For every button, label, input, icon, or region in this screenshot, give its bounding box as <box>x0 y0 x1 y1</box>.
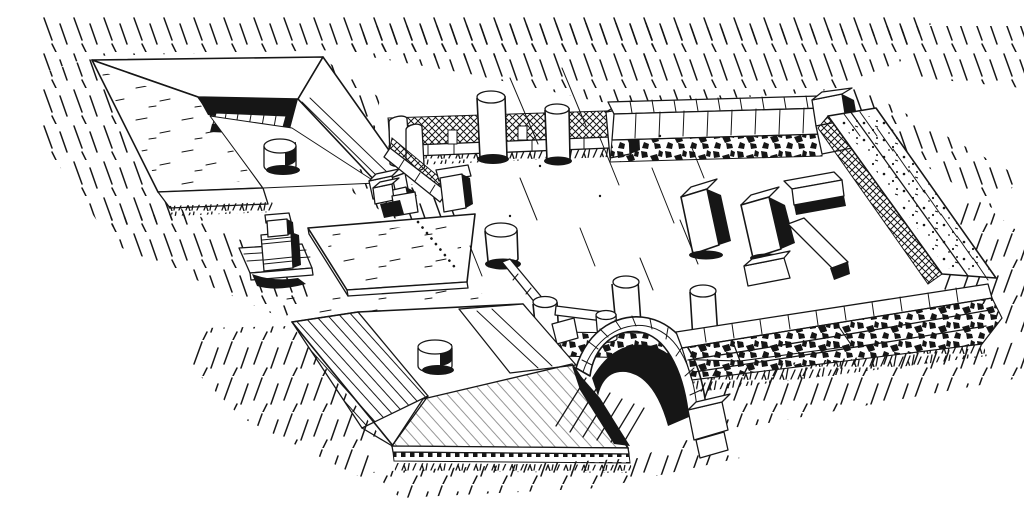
stump-top <box>545 104 569 114</box>
enclosure-back-wall <box>608 96 826 162</box>
ruins-drawing: Pen-and-ink perspective drawing of excav… <box>40 16 1024 514</box>
ruins-figure: Pen-and-ink perspective drawing of excav… <box>40 16 1024 514</box>
tall-stump <box>477 91 509 164</box>
fence-colonnade <box>388 91 640 171</box>
hatch-above-fence <box>342 22 660 104</box>
low-wall-2 <box>788 218 848 268</box>
floor-dot <box>599 195 601 197</box>
drum-top <box>596 311 616 320</box>
stump-top <box>485 223 517 237</box>
round-table-2 <box>418 340 454 375</box>
pillar-1 <box>681 179 731 260</box>
stump-top <box>690 285 716 297</box>
altar-block-shade <box>287 219 294 235</box>
column-stump <box>477 96 507 162</box>
column-stump <box>545 108 570 163</box>
altar-block <box>267 219 288 237</box>
stump-top <box>477 91 505 103</box>
dentil-frieze <box>393 452 630 463</box>
table-top <box>264 139 296 153</box>
stump-shadow <box>477 154 509 164</box>
stump-top <box>533 297 557 308</box>
fallen-slab <box>308 214 475 296</box>
stump-top <box>613 276 639 288</box>
floor-dot <box>659 135 661 137</box>
floor-dot <box>509 215 511 217</box>
fence-post <box>518 126 527 140</box>
interior-pillars <box>681 179 795 263</box>
altar <box>239 213 313 289</box>
table-shadow <box>266 165 300 175</box>
table-shadow <box>422 365 454 375</box>
fence-post <box>448 130 457 144</box>
mid-stump <box>544 104 572 166</box>
round-table-1 <box>264 139 300 175</box>
hatch-above-back-wall <box>640 26 920 104</box>
table-top <box>418 340 452 354</box>
floor-dot <box>539 165 541 167</box>
pillar-face <box>440 174 466 212</box>
stump-shadow <box>544 157 572 166</box>
